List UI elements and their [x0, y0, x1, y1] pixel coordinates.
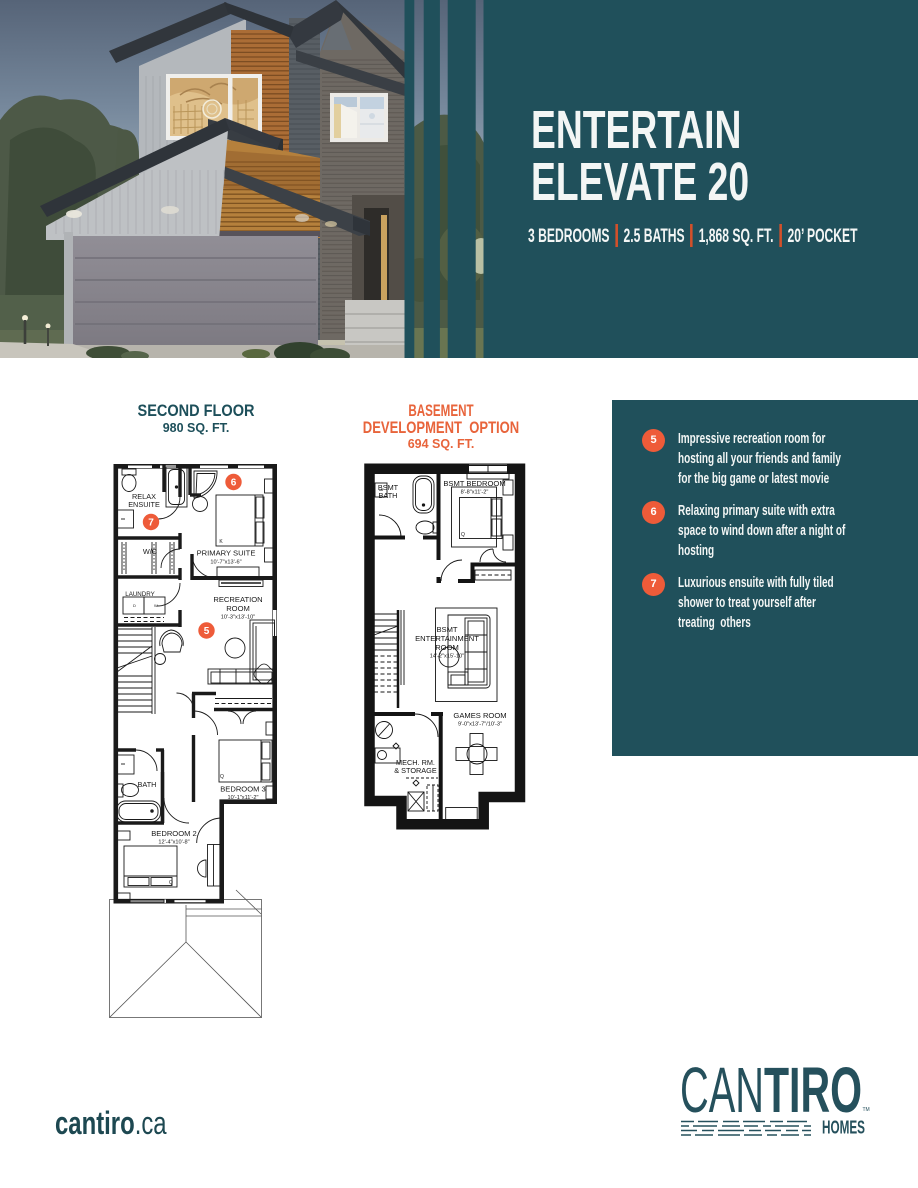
svg-text:Q: Q — [220, 774, 224, 780]
svg-text:7: 7 — [148, 518, 154, 529]
svg-text:10'-1"x11'-2": 10'-1"x11'-2" — [228, 795, 259, 801]
svg-text:ROOM: ROOM — [226, 604, 250, 613]
svg-text:5: 5 — [204, 626, 210, 637]
svg-text:D: D — [133, 603, 136, 608]
svg-text:LAUNDRY: LAUNDRY — [125, 591, 154, 598]
svg-text:& STORAGE: & STORAGE — [394, 766, 437, 775]
svg-text:Q: Q — [461, 532, 465, 538]
svg-text:ENSUITE: ENSUITE — [128, 500, 160, 509]
svg-text:ROOM: ROOM — [435, 643, 459, 652]
svg-text:W: W — [154, 603, 158, 608]
svg-text:ENTERTAINMENT: ENTERTAINMENT — [415, 634, 479, 643]
svg-text:HOMES: HOMES — [822, 1118, 865, 1138]
svg-text:12'-4"x10'-8": 12'-4"x10'-8" — [158, 840, 189, 846]
svg-text:BSMT BEDROOM: BSMT BEDROOM — [443, 479, 505, 488]
svg-text:10'-3"x13'-10": 10'-3"x13'-10" — [221, 615, 255, 621]
svg-text:BATH: BATH — [379, 491, 398, 500]
svg-text:10'-7"x13'-6": 10'-7"x13'-6" — [210, 560, 241, 566]
svg-text:GAMES ROOM: GAMES ROOM — [453, 711, 506, 720]
svg-text:BEDROOM 2: BEDROOM 2 — [151, 829, 197, 838]
svg-text:RECREATION: RECREATION — [213, 595, 262, 604]
svg-text:PRIMARY SUITE: PRIMARY SUITE — [197, 549, 256, 558]
svg-text:BSMT: BSMT — [436, 625, 457, 634]
svg-text:8'-8"x11'-2": 8'-8"x11'-2" — [461, 490, 489, 496]
svg-text:TM: TM — [863, 1107, 870, 1113]
svg-text:TIRO: TIRO — [764, 1055, 862, 1126]
svg-text:14'-2"x15'-10": 14'-2"x15'-10" — [430, 654, 464, 660]
svg-text:9'-0"x13'-7"/10'-3": 9'-0"x13'-7"/10'-3" — [458, 722, 502, 728]
svg-text:Q: Q — [169, 880, 173, 886]
svg-text:CAN: CAN — [680, 1055, 764, 1126]
svg-text:6: 6 — [231, 478, 237, 489]
svg-text:BEDROOM 3: BEDROOM 3 — [220, 785, 266, 794]
svg-text:BATH: BATH — [138, 780, 157, 789]
svg-text:W/C: W/C — [143, 547, 157, 556]
